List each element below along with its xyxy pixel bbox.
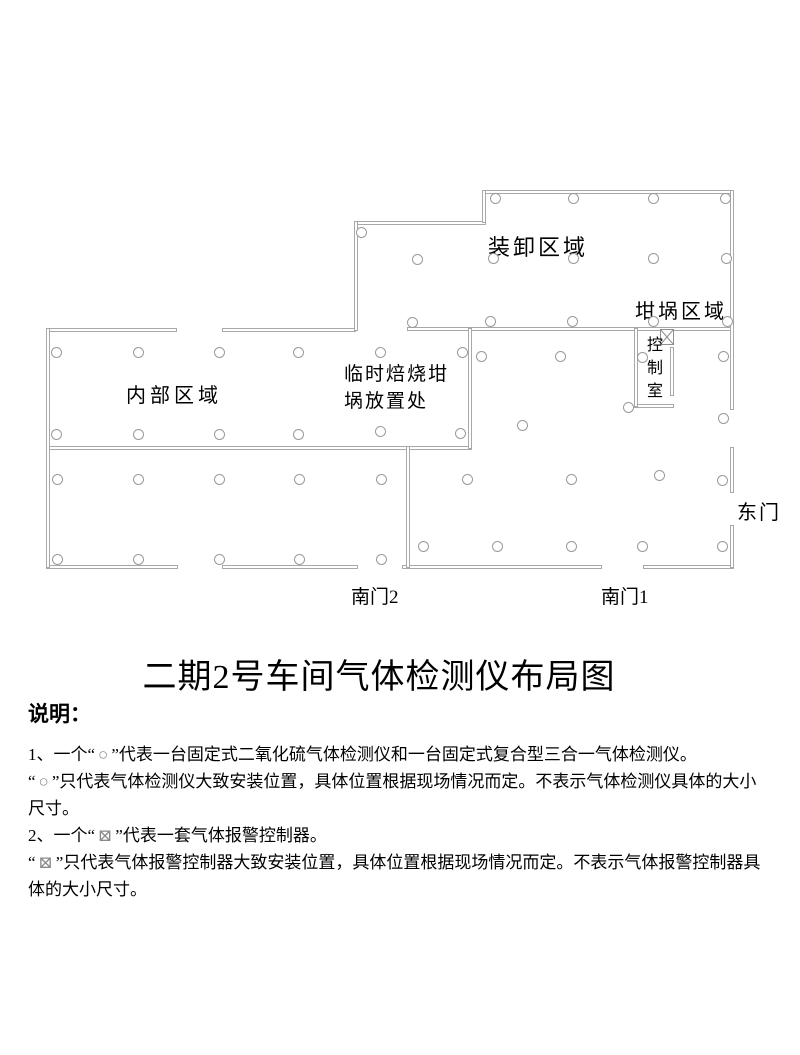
detector-circle bbox=[566, 541, 577, 552]
detector-circle bbox=[485, 316, 496, 327]
note-text: 2、一个“ bbox=[28, 826, 95, 845]
detector-circle bbox=[375, 347, 386, 358]
zone-label-temp-roasting: 临时焙烧坩埚放置处 bbox=[344, 361, 460, 415]
detector-circle bbox=[720, 193, 731, 204]
detector-circle bbox=[455, 428, 466, 439]
detector-circle bbox=[718, 413, 729, 424]
note-text: ”只代表气体检测仪大致安装位置，具体位置根据现场情况而定。不表示气体检测仪具体的… bbox=[28, 772, 756, 818]
wall bbox=[354, 221, 358, 331]
wall bbox=[468, 328, 472, 449]
note-line: “○”只代表气体检测仪大致安装位置，具体位置根据现场情况而定。不表示气体检测仪具… bbox=[28, 768, 773, 822]
detector-circle bbox=[488, 253, 499, 264]
page: 装卸区域 坩埚区域 内部区域 临时焙烧坩埚放置处 控制室 东门 南门2 南门1 … bbox=[0, 0, 800, 1055]
detector-symbol-glyph: ○ bbox=[95, 745, 111, 764]
detector-circle bbox=[418, 541, 429, 552]
detector-circle bbox=[648, 316, 659, 327]
note-text: “ bbox=[28, 853, 36, 872]
detector-circle bbox=[637, 541, 648, 552]
floor-plan: 装卸区域 坩埚区域 内部区域 临时焙烧坩埚放置处 控制室 东门 南门2 南门1 bbox=[0, 0, 800, 640]
detector-circle bbox=[52, 474, 63, 485]
detector-circle bbox=[717, 541, 728, 552]
wall bbox=[354, 221, 486, 225]
detector-circle bbox=[407, 317, 418, 328]
detector-circle bbox=[52, 554, 63, 565]
detector-circle bbox=[214, 554, 225, 565]
detector-circle bbox=[637, 352, 648, 363]
detector-circle bbox=[214, 347, 225, 358]
detector-circle bbox=[376, 554, 387, 565]
controller-symbol-glyph: ⊠ bbox=[36, 853, 56, 872]
wall bbox=[730, 447, 734, 493]
wall bbox=[46, 565, 178, 569]
wall bbox=[46, 328, 177, 332]
notes: 1、一个“○”代表一台固定式二氧化硫气体检测仪和一台固定式复合型三合一气体检测仪… bbox=[28, 741, 773, 903]
detector-circle bbox=[457, 347, 468, 358]
detector-circle bbox=[294, 554, 305, 565]
wall bbox=[407, 327, 734, 331]
wall bbox=[46, 328, 50, 568]
zone-label-internal: 内部区域 bbox=[126, 379, 222, 408]
detector-circle bbox=[648, 253, 659, 264]
detector-circle bbox=[555, 351, 566, 362]
detector-circle bbox=[293, 347, 304, 358]
wall bbox=[406, 446, 410, 568]
detector-circle bbox=[568, 193, 579, 204]
notes-heading: 说明： bbox=[28, 698, 91, 728]
page-title: 二期2号车间气体检测仪布局图 bbox=[0, 649, 758, 698]
controller-symbol-glyph: ⊠ bbox=[95, 826, 115, 845]
detector-circle bbox=[476, 351, 487, 362]
detector-circle bbox=[492, 541, 503, 552]
detector-circle bbox=[654, 470, 665, 481]
detector-circle bbox=[51, 429, 62, 440]
note-text: 1、一个“ bbox=[28, 745, 95, 764]
detector-circle bbox=[375, 426, 386, 437]
detector-circle bbox=[721, 253, 732, 264]
door-label-south2: 南门2 bbox=[351, 582, 399, 609]
detector-circle bbox=[133, 554, 144, 565]
wall bbox=[730, 190, 734, 410]
detector-circle bbox=[623, 402, 634, 413]
door-label-east: 东门 bbox=[737, 496, 781, 525]
wall-control-room-door bbox=[670, 347, 674, 396]
detector-circle bbox=[214, 429, 225, 440]
detector-circle bbox=[648, 193, 659, 204]
detector-circle bbox=[214, 474, 225, 485]
wall bbox=[482, 190, 734, 194]
detector-circle bbox=[294, 474, 305, 485]
detector-circle bbox=[722, 316, 733, 327]
note-text: ”只代表气体报警控制器大致安装位置，具体位置根据现场情况而定。不表示气体报警控制… bbox=[28, 853, 760, 899]
note-line: “⊠”只代表气体报警控制器大致安装位置，具体位置根据现场情况而定。不表示气体报警… bbox=[28, 849, 773, 903]
detector-circle bbox=[568, 253, 579, 264]
detector-circle bbox=[133, 347, 144, 358]
detector-circle bbox=[51, 347, 62, 358]
door-label-south1: 南门1 bbox=[601, 582, 649, 609]
wall-control-room bbox=[634, 328, 638, 407]
note-text: ”代表一套气体报警控制器。 bbox=[115, 826, 327, 845]
detector-circle bbox=[718, 351, 729, 362]
wall bbox=[730, 525, 734, 568]
detector-circle bbox=[566, 474, 577, 485]
detector-circle bbox=[133, 474, 144, 485]
note-text: “ bbox=[28, 772, 36, 791]
detector-circle bbox=[412, 254, 423, 265]
detector-circle bbox=[490, 193, 501, 204]
wall bbox=[222, 565, 358, 569]
wall bbox=[222, 328, 356, 332]
note-line: 2、一个“⊠”代表一套气体报警控制器。 bbox=[28, 822, 773, 849]
wall bbox=[402, 565, 602, 569]
detector-circle bbox=[462, 474, 473, 485]
note-text: ”代表一台固定式二氧化硫气体检测仪和一台固定式复合型三合一气体检测仪。 bbox=[111, 745, 697, 764]
detector-circle bbox=[376, 474, 387, 485]
detector-symbol-glyph: ○ bbox=[36, 772, 52, 791]
detector-circle bbox=[133, 429, 144, 440]
detector-circle bbox=[356, 227, 367, 238]
wall bbox=[643, 565, 734, 569]
detector-circle bbox=[567, 316, 578, 327]
wall bbox=[482, 190, 486, 223]
note-line: 1、一个“○”代表一台固定式二氧化硫气体检测仪和一台固定式复合型三合一气体检测仪… bbox=[28, 741, 773, 768]
detector-circle bbox=[517, 420, 528, 431]
detector-circle bbox=[717, 475, 728, 486]
detector-circle bbox=[293, 429, 304, 440]
zone-label-control-room: 控制室 bbox=[640, 336, 664, 405]
